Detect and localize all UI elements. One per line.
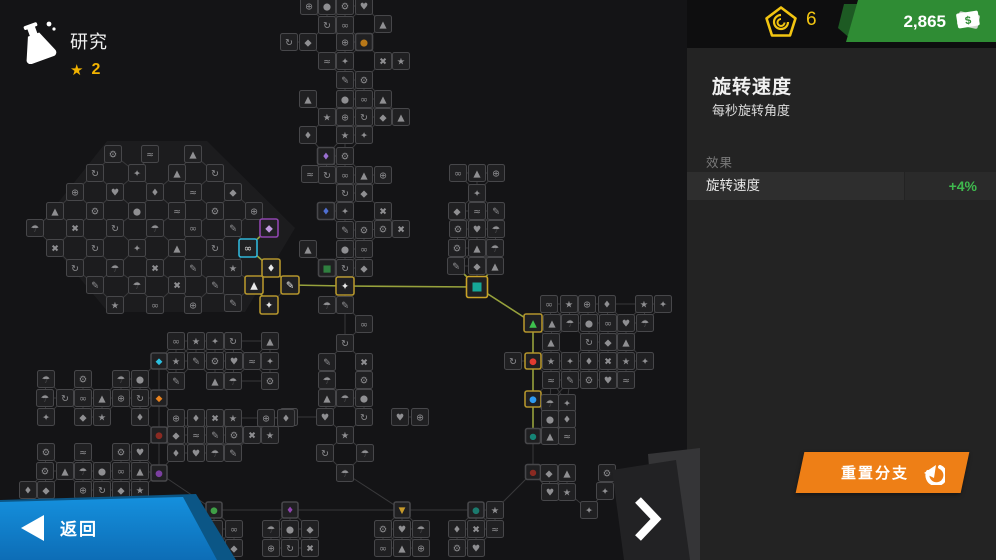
svg-text:✎: ✎ (211, 280, 219, 291)
skill-node[interactable]: ♦ (581, 353, 598, 370)
skill-node[interactable]: ⚙ (207, 203, 224, 220)
skill-node[interactable]: ✦ (336, 277, 354, 295)
skill-node[interactable]: ✖ (393, 221, 410, 238)
skill-node[interactable]: ♥ (468, 540, 485, 557)
skill-node[interactable]: ↻ (281, 34, 298, 51)
skill-node[interactable]: ♦ (449, 521, 466, 538)
skill-node[interactable]: ♥ (356, 0, 373, 15)
skill-node[interactable]: ⊕ (488, 165, 505, 182)
skill-node[interactable]: ⊕ (337, 109, 354, 126)
skill-node[interactable]: ◆ (302, 521, 319, 538)
skill-node[interactable]: ★ (618, 353, 635, 370)
reset-branch-button[interactable]: 重置分支 (796, 452, 970, 493)
svg-text:☂: ☂ (42, 374, 50, 385)
skill-node[interactable]: ⚙ (37, 463, 54, 480)
skill-node[interactable]: ☂ (207, 445, 224, 462)
skill-node[interactable]: ↻ (337, 185, 354, 202)
svg-text:▲: ▲ (304, 244, 312, 255)
skill-node[interactable]: ⚙ (113, 444, 130, 461)
skill-node[interactable]: ✖ (468, 521, 485, 538)
skill-node[interactable]: ▲ (542, 428, 559, 445)
skill-node[interactable]: ⊕ (412, 409, 429, 426)
skill-node[interactable]: ▲ (262, 333, 279, 350)
skill-node[interactable]: ↻ (107, 220, 124, 237)
skill-node[interactable]: ⚙ (105, 146, 122, 163)
skill-node[interactable]: ∞ (356, 316, 373, 333)
skill-node[interactable]: ▲ (319, 390, 336, 407)
skill-node[interactable]: ∞ (113, 463, 130, 480)
skill-node[interactable]: ▲ (356, 167, 373, 184)
skill-node[interactable]: ▲ (375, 16, 392, 33)
svg-text:★: ★ (622, 356, 630, 367)
skill-node[interactable]: ◆ (600, 334, 617, 351)
skill-node[interactable]: ✦ (337, 203, 354, 220)
skill-node[interactable]: ✖ (67, 220, 84, 237)
skill-node[interactable]: ♦ (132, 409, 149, 426)
skill-node[interactable]: ★ (487, 502, 504, 519)
skill-node[interactable]: ✦ (262, 353, 279, 370)
skill-node[interactable]: ★ (319, 109, 336, 126)
svg-text:★: ★ (491, 505, 499, 516)
skill-node[interactable]: ● (337, 91, 354, 108)
skill-node[interactable]: ♥ (394, 521, 411, 538)
skill-node[interactable]: ✦ (637, 353, 654, 370)
skill-node[interactable]: ∞ (450, 165, 467, 182)
skill-node[interactable]: ✎ (185, 260, 202, 277)
skill-node[interactable]: ⊕ (113, 390, 130, 407)
svg-text:✦: ✦ (265, 301, 273, 312)
skill-node[interactable]: ✎ (207, 277, 224, 294)
skill-node[interactable]: ▲ (559, 465, 576, 482)
skill-node[interactable]: ☂ (357, 445, 374, 462)
skill-node[interactable]: ↻ (207, 240, 224, 257)
skill-node[interactable]: ≈ (188, 427, 205, 444)
skill-node[interactable]: ✦ (356, 127, 373, 144)
svg-text:★: ★ (172, 356, 180, 367)
svg-text:≈: ≈ (146, 149, 154, 160)
skill-node[interactable]: ♥ (107, 184, 124, 201)
svg-text:∞: ∞ (117, 466, 125, 477)
skill-node[interactable]: ⊕ (67, 184, 84, 201)
skill-node[interactable]: ✦ (655, 296, 672, 313)
skill-node[interactable]: ☂ (37, 390, 54, 407)
svg-text:✦: ✦ (659, 299, 667, 310)
skill-node[interactable]: ★ (559, 484, 576, 501)
skill-node[interactable]: ✖ (375, 203, 392, 220)
skill-node[interactable]: ⊕ (263, 540, 280, 557)
skill-node[interactable]: ≈ (244, 353, 261, 370)
skill-node[interactable]: ☂ (107, 260, 124, 277)
svg-text:✖: ✖ (151, 263, 159, 274)
skill-node[interactable]: ∞ (356, 91, 373, 108)
skill-node[interactable]: ↻ (57, 390, 74, 407)
skill-node[interactable]: ⊕ (301, 0, 318, 15)
svg-text:☂: ☂ (491, 243, 499, 254)
skill-node[interactable]: ☂ (413, 521, 430, 538)
svg-text:★: ★ (565, 299, 573, 310)
svg-text:✦: ✦ (42, 412, 50, 423)
skill-node[interactable]: ★ (188, 333, 205, 350)
skill-node[interactable]: ★ (636, 296, 653, 313)
skill-node[interactable]: ♦ (282, 502, 298, 518)
skill-node[interactable]: ✦ (260, 296, 278, 314)
skill-node[interactable]: ✎ (188, 353, 205, 370)
skill-node[interactable]: ✎ (225, 220, 242, 237)
skill-node[interactable]: ⚙ (375, 521, 392, 538)
skill-node[interactable]: ⚙ (75, 371, 92, 388)
skill-node[interactable]: ♦ (278, 410, 295, 427)
skill-node[interactable]: ◆ (449, 203, 466, 220)
skill-node[interactable]: ✖ (302, 540, 319, 557)
skill-node[interactable]: ✎ (87, 277, 104, 294)
skill-node[interactable]: ● (468, 502, 484, 518)
skill-node[interactable]: ↻ (581, 334, 598, 351)
skill-node[interactable]: ✦ (581, 502, 598, 519)
skill-node[interactable]: ♥ (618, 315, 635, 332)
skill-node[interactable]: ☂ (637, 315, 654, 332)
skill-node[interactable]: ● (525, 353, 541, 369)
skill-node[interactable]: ↻ (87, 240, 104, 257)
skill-node[interactable]: ✎ (281, 276, 299, 294)
skill-node[interactable]: ● (151, 465, 167, 481)
skill-node[interactable]: ⊕ (258, 410, 275, 427)
skill-node[interactable]: ☂ (562, 315, 579, 332)
skill-node[interactable]: ∞ (541, 296, 558, 313)
skill-node[interactable]: ↻ (87, 165, 104, 182)
skill-node[interactable]: ✎ (225, 295, 242, 312)
skill-node[interactable]: ≈ (618, 372, 635, 389)
skill-node[interactable]: ≈ (469, 203, 486, 220)
skill-node[interactable]: ● (542, 411, 559, 428)
skill-node[interactable]: ✖ (207, 410, 224, 427)
skill-node[interactable]: ☂ (542, 395, 559, 412)
skill-node[interactable]: ★ (337, 127, 354, 144)
svg-text:≈: ≈ (192, 430, 200, 441)
skill-node[interactable]: ◆ (375, 109, 392, 126)
skill-node[interactable]: ≈ (302, 166, 319, 183)
skill-node[interactable]: ☂ (319, 372, 336, 389)
skill-node[interactable]: ★ (262, 427, 279, 444)
skill-node[interactable]: ✎ (225, 445, 242, 462)
skill-node[interactable]: ✎ (207, 427, 224, 444)
skill-node[interactable]: ☂ (225, 373, 242, 390)
skill-node[interactable]: ∞ (356, 241, 373, 258)
skill-node[interactable]: ▲ (207, 373, 224, 390)
svg-text:♦: ♦ (453, 524, 461, 535)
skill-node[interactable]: ★ (94, 409, 111, 426)
skill-node[interactable]: ● (319, 0, 336, 15)
skill-node[interactable]: ≈ (185, 184, 202, 201)
skill-node[interactable]: ⚙ (356, 222, 373, 239)
skill-node[interactable]: ● (129, 203, 146, 220)
skill-node[interactable]: ☂ (113, 371, 130, 388)
skill-node[interactable]: ⊕ (168, 410, 185, 427)
skill-node[interactable]: ♥ (317, 409, 334, 426)
skill-node[interactable]: ✖ (375, 53, 392, 70)
skill-node[interactable]: ∞ (337, 167, 354, 184)
skill-node[interactable]: ⚙ (226, 427, 243, 444)
svg-text:▲: ▲ (547, 337, 555, 348)
svg-text:⊕: ⊕ (267, 543, 275, 554)
skill-node[interactable]: ● (356, 34, 373, 51)
skill-node[interactable]: ↻ (225, 333, 242, 350)
skill-node[interactable]: ∞ (600, 315, 617, 332)
skill-node[interactable]: ↻ (337, 335, 354, 352)
skill-node[interactable]: ♦ (300, 127, 317, 144)
skill-node[interactable]: ★ (168, 353, 185, 370)
skill-node[interactable]: ☂ (337, 390, 354, 407)
skill-node[interactable]: ◆ (356, 185, 373, 202)
skill-node[interactable]: ≈ (169, 203, 186, 220)
skill-node[interactable]: ⊕ (337, 34, 354, 51)
skill-node[interactable]: ⚙ (449, 540, 466, 557)
skill-node[interactable]: ↻ (356, 109, 373, 126)
skill-node[interactable]: ⊕ (185, 297, 202, 314)
skill-node[interactable]: ≈ (75, 444, 92, 461)
skill-node[interactable]: ≈ (142, 146, 159, 163)
skill-node[interactable]: ✦ (469, 185, 486, 202)
skill-node[interactable]: ⊕ (375, 167, 392, 184)
next-button[interactable] (596, 448, 706, 560)
skill-node-selected[interactable] (467, 277, 488, 298)
skill-node[interactable]: ▲ (245, 276, 263, 294)
skill-node[interactable]: ↻ (207, 165, 224, 182)
skill-node[interactable]: ⊕ (246, 203, 263, 220)
skill-node[interactable]: ✎ (488, 203, 505, 220)
skill-node[interactable]: ◆ (151, 390, 167, 406)
skill-node[interactable]: ▲ (487, 258, 504, 275)
skill-node[interactable]: ✖ (47, 240, 64, 257)
skill-node[interactable]: ♦ (318, 203, 335, 220)
skill-node[interactable]: ✖ (169, 277, 186, 294)
skill-node[interactable]: ● (132, 371, 149, 388)
skill-node[interactable]: ▲ (469, 165, 486, 182)
skill-node[interactable]: ∞ (168, 333, 185, 350)
skill-node[interactable]: ✖ (600, 353, 617, 370)
svg-text:◆: ◆ (473, 261, 481, 272)
skill-node[interactable]: ✦ (38, 409, 55, 426)
skill-node[interactable]: ▲ (47, 203, 64, 220)
skill-node[interactable]: ♥ (392, 409, 409, 426)
svg-text:✖: ✖ (604, 356, 612, 367)
skill-node[interactable]: ★ (107, 297, 124, 314)
skill-node[interactable]: ✎ (337, 72, 354, 89)
skill-node[interactable]: ▲ (169, 165, 186, 182)
effects-section-label: 效果 (706, 152, 733, 171)
skill-node[interactable]: ♦ (168, 445, 185, 462)
skill-node[interactable]: ◆ (356, 260, 373, 277)
skill-node[interactable]: ▲ (469, 240, 486, 257)
skill-node[interactable]: ✖ (244, 427, 261, 444)
svg-text:●: ● (341, 244, 349, 255)
skill-node[interactable]: ☂ (129, 277, 146, 294)
skill-node[interactable]: ★ (337, 427, 354, 444)
skill-node[interactable]: ✦ (207, 333, 224, 350)
skill-node[interactable]: ⚙ (337, 0, 354, 15)
skill-node[interactable]: ◆ (300, 34, 317, 51)
skill-node[interactable]: ∞ (337, 17, 354, 34)
skill-node[interactable]: ✎ (562, 372, 579, 389)
skill-node[interactable]: ⚙ (449, 240, 466, 257)
skill-node[interactable]: ⚙ (356, 372, 373, 389)
skill-node[interactable]: ◆ (225, 184, 242, 201)
svg-text:◆: ◆ (172, 430, 180, 441)
skill-node[interactable]: ▲ (393, 109, 410, 126)
skill-node[interactable]: ▲ (375, 91, 392, 108)
skill-node[interactable]: ✦ (337, 53, 354, 70)
back-label: 返回 (60, 520, 98, 539)
skill-node[interactable]: ♦ (262, 259, 280, 277)
skill-node[interactable]: ∞ (75, 390, 92, 407)
skill-node[interactable]: ✎ (168, 373, 185, 390)
svg-text:✖: ✖ (51, 243, 59, 254)
skill-node[interactable]: ☂ (488, 221, 505, 238)
skill-node[interactable]: ● (282, 521, 299, 538)
skill-node[interactable]: ↻ (317, 445, 334, 462)
skill-node[interactable]: ▲ (300, 241, 317, 258)
skill-node[interactable]: ☂ (319, 297, 336, 314)
skill-node[interactable]: ↻ (337, 260, 354, 277)
skill-node[interactable]: ✎ (337, 222, 354, 239)
skill-node[interactable]: ☂ (147, 220, 164, 237)
skill-node[interactable]: ● (526, 465, 541, 480)
skill-node[interactable]: ≈ (543, 372, 560, 389)
skill-node[interactable]: ⚙ (337, 148, 354, 165)
skill-node[interactable]: ✦ (559, 395, 576, 412)
skill-node[interactable]: ♥ (600, 372, 617, 389)
skill-node[interactable]: ♥ (542, 484, 559, 501)
skill-node[interactable]: ✦ (562, 353, 579, 370)
skill-node[interactable]: ☂ (27, 220, 44, 237)
skill-node[interactable]: ⚙ (38, 444, 55, 461)
svg-text:≈: ≈ (323, 56, 331, 67)
skill-node[interactable]: ▲ (544, 315, 561, 332)
skill-node[interactable]: ★ (561, 296, 578, 313)
skill-node[interactable]: ⊕ (413, 540, 430, 557)
skill-node[interactable]: ⚙ (450, 221, 467, 238)
skill-node[interactable]: ▲ (543, 334, 560, 351)
skill-node[interactable]: ▲ (618, 334, 635, 351)
svg-text:✦: ✦ (360, 130, 368, 141)
skill-node[interactable]: ∞ (185, 220, 202, 237)
svg-text:☂: ☂ (117, 374, 125, 385)
skill-node[interactable]: ✎ (337, 297, 354, 314)
skill-node[interactable]: ● (581, 315, 598, 332)
back-button[interactable]: 返回 (0, 488, 240, 560)
skill-node[interactable]: ★ (225, 410, 242, 427)
skill-node[interactable]: ▲ (185, 146, 202, 163)
skill-node[interactable]: ⚙ (375, 221, 392, 238)
skill-node[interactable]: ≈ (487, 521, 504, 538)
skill-node[interactable]: ∞ (147, 297, 164, 314)
svg-text:☂: ☂ (211, 448, 219, 459)
skill-node[interactable]: ↻ (505, 353, 522, 370)
svg-text:⚙: ⚙ (211, 356, 219, 367)
skill-node[interactable]: ▲ (524, 314, 542, 332)
skill-node[interactable]: ★ (225, 260, 242, 277)
skill-node[interactable]: ✦ (129, 165, 146, 182)
svg-text:≈: ≈ (491, 524, 499, 535)
skill-node[interactable]: ♦ (188, 410, 205, 427)
skill-node[interactable]: ● (526, 429, 541, 444)
skill-node[interactable]: ✖ (147, 260, 164, 277)
skill-node[interactable]: ♦ (147, 184, 164, 201)
skill-node[interactable]: ☂ (263, 521, 280, 538)
cash-amount: 2,865 (903, 12, 946, 31)
skill-node[interactable]: ◆ (151, 353, 167, 369)
skill-node[interactable]: ▲ (57, 463, 74, 480)
skill-node[interactable]: ♥ (469, 221, 486, 238)
skill-node[interactable]: ▲ (132, 463, 149, 480)
skill-node[interactable]: ♥ (226, 353, 243, 370)
skill-node[interactable]: ◆ (541, 465, 558, 482)
svg-text:✦: ✦ (341, 56, 349, 67)
skill-node[interactable]: ◆ (260, 219, 278, 237)
skill-node[interactable]: ◆ (75, 409, 92, 426)
skill-node[interactable]: ● (94, 463, 111, 480)
skill-node[interactable]: ◆ (168, 427, 185, 444)
svg-text:✖: ✖ (211, 413, 219, 424)
skill-node[interactable]: ☂ (75, 463, 92, 480)
skill-node[interactable]: ☂ (38, 371, 55, 388)
skill-node[interactable]: ♦ (318, 148, 335, 165)
svg-text:▲: ▲ (473, 168, 481, 179)
skill-node[interactable]: ✎ (319, 354, 336, 371)
skill-node[interactable]: ✖ (356, 354, 373, 371)
skill-node[interactable]: ▲ (300, 91, 317, 108)
skill-node[interactable]: ★ (393, 53, 410, 70)
skill-node[interactable]: ∞ (239, 239, 257, 257)
skill-node[interactable]: ▲ (169, 240, 186, 257)
skill-node[interactable]: ♦ (599, 296, 616, 313)
skill-node[interactable]: ♥ (132, 444, 149, 461)
svg-text:✦: ✦ (563, 398, 571, 409)
skill-node[interactable]: ● (356, 390, 373, 407)
skill-node[interactable]: ▲ (394, 540, 411, 557)
skill-node[interactable]: ♥ (188, 445, 205, 462)
skill-node[interactable]: ⚙ (262, 373, 279, 390)
skill-node[interactable]: ⊕ (579, 296, 596, 313)
skill-node[interactable]: ● (525, 391, 541, 407)
skill-node[interactable]: ⚙ (207, 353, 224, 370)
skill-node[interactable]: ● (151, 427, 167, 443)
skill-node[interactable]: ↻ (319, 167, 336, 184)
skill-node[interactable]: ♦ (559, 411, 576, 428)
skill-node[interactable]: ≈ (319, 53, 336, 70)
skill-node[interactable]: ↻ (319, 17, 336, 34)
skill-node[interactable]: ✦ (129, 240, 146, 257)
skill-node[interactable]: ☂ (337, 465, 354, 482)
skill-node[interactable]: ↻ (132, 390, 149, 407)
skill-node[interactable]: ≈ (559, 428, 576, 445)
skill-node[interactable]: ☂ (487, 240, 504, 257)
skill-node[interactable]: ↻ (356, 409, 373, 426)
skill-node[interactable]: ▼ (394, 502, 410, 518)
svg-text:▲: ▲ (136, 466, 144, 477)
skill-node[interactable]: ↻ (282, 540, 299, 557)
skill-node[interactable]: ◆ (469, 258, 486, 275)
skill-node[interactable]: ⚙ (356, 72, 373, 89)
skill-node[interactable]: ● (337, 241, 354, 258)
skill-node[interactable]: ▲ (94, 390, 111, 407)
skill-node[interactable]: ⚙ (87, 203, 104, 220)
skill-node[interactable]: ★ (543, 353, 560, 370)
skill-node[interactable]: ↻ (67, 260, 84, 277)
skill-node[interactable]: ⚙ (581, 372, 598, 389)
skill-node[interactable]: ✎ (448, 258, 465, 275)
skill-node[interactable]: ∞ (375, 540, 392, 557)
skill-node[interactable]: ■ (319, 260, 336, 277)
